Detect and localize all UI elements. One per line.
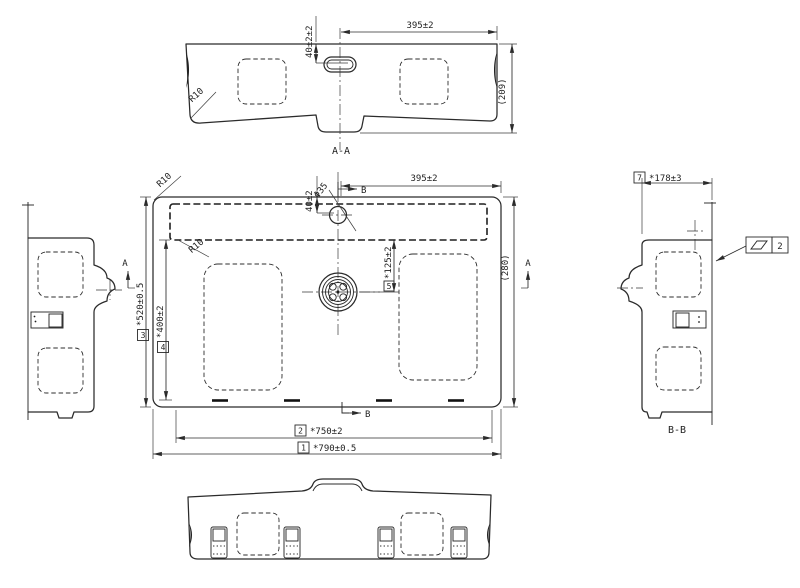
section-b-label-bottom: B bbox=[365, 410, 370, 420]
drawing-sheet: 40±2±2 395±2 (209) R10 A-A bbox=[0, 0, 800, 588]
section-mark-a-right: A bbox=[521, 259, 531, 288]
section-mark-a-left: A bbox=[122, 259, 135, 288]
ledge-hidden-outline bbox=[170, 204, 487, 240]
hidden-pad-right bbox=[400, 59, 448, 104]
balloon-2: 2 bbox=[298, 427, 303, 436]
hidden-pad-upper-left-view bbox=[38, 252, 83, 297]
dim-hole-to-edge-plan: 395±2 bbox=[410, 174, 437, 184]
hidden-pad-left-bottom bbox=[237, 513, 279, 555]
overflow-detail-left bbox=[31, 312, 63, 328]
flatness-value: 2 bbox=[777, 242, 782, 252]
dim-height-ref-aa: (209) bbox=[498, 78, 508, 105]
hidden-pad-left bbox=[238, 59, 286, 104]
overflow-detail-right bbox=[673, 311, 706, 328]
balloon-4: 4 bbox=[161, 343, 166, 352]
balloon-7: 7 bbox=[637, 174, 642, 183]
dim-width-bb: *178±3 bbox=[649, 174, 682, 184]
dim-width-inner: *750±2 bbox=[310, 427, 343, 437]
flatness-tolerance-frame: 2 bbox=[716, 237, 788, 261]
radius-outer-label: R10 bbox=[155, 171, 174, 189]
dim-depth: *520±0.5 bbox=[136, 283, 146, 326]
section-a-label-right: A bbox=[525, 259, 531, 269]
balloon-5: 5 bbox=[387, 282, 392, 291]
hidden-pad-right-bottom bbox=[401, 513, 443, 555]
balloon-1: 1 bbox=[301, 444, 306, 453]
mounting-clip-1 bbox=[211, 527, 227, 558]
view-plan: 40±2 Φ35 395±2 (280) *125±2 5 *520±0.5 3… bbox=[122, 171, 531, 459]
hidden-pad-lower-right-view bbox=[656, 347, 701, 390]
dim-hole-to-edge-aa: 395±2 bbox=[406, 21, 433, 31]
dim-drain-offset: *125±2 bbox=[384, 246, 394, 279]
view-section-bb: 7 *178±3 2 B-B bbox=[617, 172, 788, 436]
plan-outline bbox=[153, 197, 501, 407]
dim-width: *790±0.5 bbox=[313, 444, 356, 454]
flatness-icon bbox=[751, 241, 767, 249]
view-left-side bbox=[22, 202, 122, 420]
radius-label-aa: R10 bbox=[187, 86, 206, 104]
dim-depth-inner: *400±2 bbox=[156, 305, 166, 338]
dim-depth-ref: (280) bbox=[501, 254, 511, 281]
section-mark-b-top: B bbox=[338, 182, 366, 197]
mounting-clip-3 bbox=[378, 527, 394, 558]
section-b-label-top: B bbox=[361, 186, 366, 196]
cad-drawing-canvas: 40±2±2 395±2 (209) R10 A-A bbox=[0, 0, 800, 588]
dim-hole-offset-aa: 40±2±2 bbox=[305, 25, 315, 58]
hidden-pad-right-plan bbox=[399, 254, 477, 380]
view-bottom bbox=[188, 479, 491, 559]
mounting-clip-4 bbox=[451, 527, 467, 558]
section-a-label-left: A bbox=[122, 259, 128, 269]
hidden-pad-lower-left-view bbox=[38, 348, 83, 393]
balloon-3: 3 bbox=[141, 331, 146, 340]
section-mark-b-bottom: B bbox=[342, 402, 370, 420]
hidden-pad-left-plan bbox=[204, 264, 282, 390]
hidden-pad-upper-right-view bbox=[656, 252, 701, 297]
section-aa-title: A-A bbox=[332, 146, 350, 157]
section-bb-title: B-B bbox=[668, 425, 686, 436]
mounting-clip-2 bbox=[284, 527, 300, 558]
view-section-aa: 40±2±2 395±2 (209) R10 A-A bbox=[186, 16, 517, 157]
